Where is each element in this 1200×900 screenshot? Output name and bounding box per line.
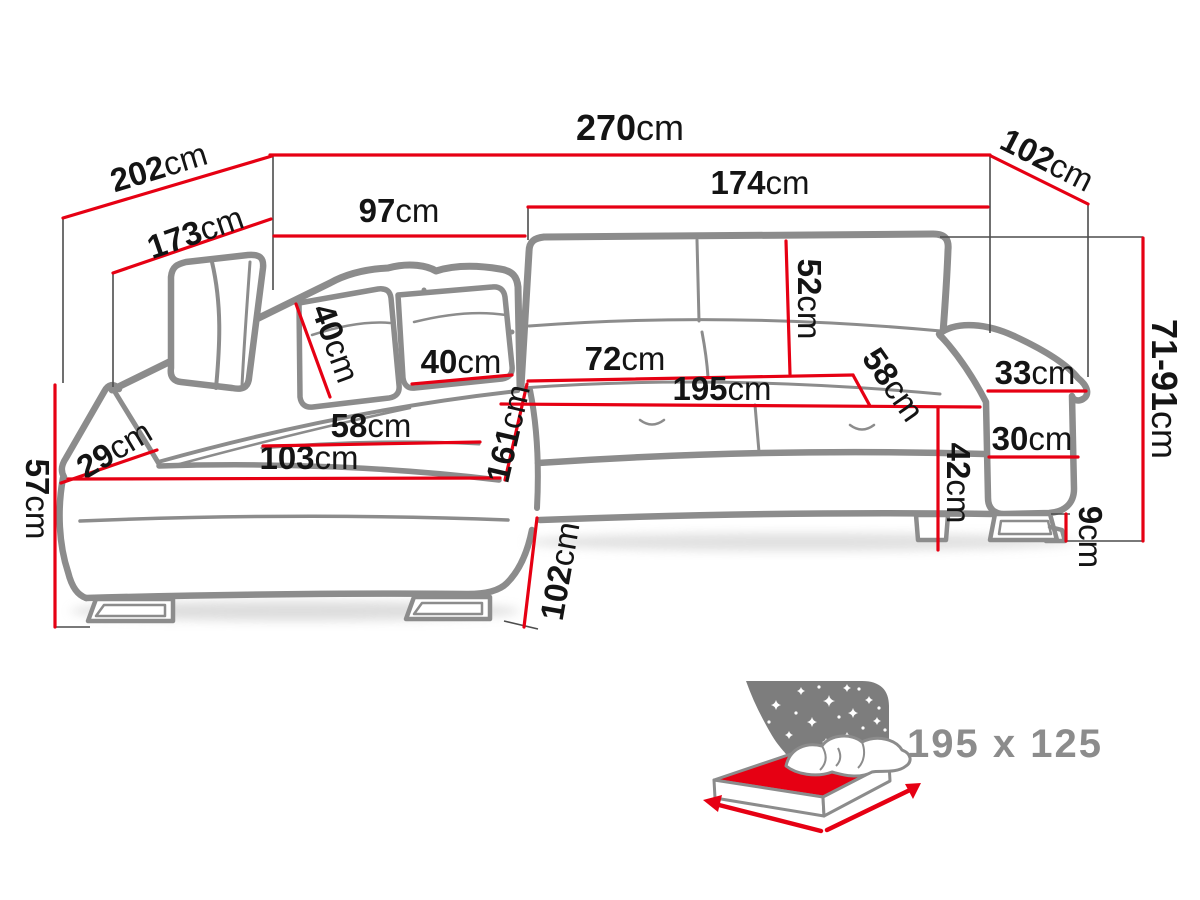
dimension-33cm: 33cm (988, 354, 1086, 391)
dimension-52cm: 52cm (786, 241, 828, 374)
dimension-29cm: 29cm (61, 412, 158, 485)
dimension-270cm: 270cm (270, 107, 990, 155)
dim-line-103 (68, 478, 500, 479)
dim-label-42: 42cm (940, 443, 977, 524)
dim-label-161: 161cm (479, 381, 537, 486)
dim-line-58-right (853, 375, 870, 406)
dim-label-97: 97cm (359, 192, 440, 229)
dimension-97cm: 97cm (274, 192, 525, 236)
dim-label-58-right: 58cm (855, 341, 932, 428)
sofa-back-vertical-seam (697, 240, 708, 377)
dimension-40cm-right-pillow: 40cm (412, 343, 512, 384)
sofa-seat-seam (755, 405, 759, 452)
dim-label-33: 33cm (995, 354, 1076, 391)
chaise-front-left-edge (60, 478, 86, 598)
dim-label-102-top: 102cm (995, 121, 1100, 199)
dim-label-270: 270cm (576, 107, 684, 148)
dim-label-72: 72cm (585, 340, 666, 377)
dimension-102cm-top: 102cm (991, 121, 1100, 204)
dim-line-52 (786, 241, 790, 374)
dim-label-57: 57cm (19, 459, 56, 540)
bed-arrow-width-head (703, 795, 722, 812)
dim-label-195: 195cm (672, 370, 771, 407)
sleeping-area-icon: 195 x 125 (703, 681, 1103, 831)
chaise-bottom-edge (86, 530, 532, 598)
dimension-71-91cm: 71-91cm (1143, 238, 1185, 541)
dim-label-71-91: 71-91cm (1144, 319, 1185, 459)
chaise-front-crease (80, 516, 508, 521)
dimension-57cm: 57cm (19, 385, 56, 627)
sofa-seat-front-edge (538, 452, 985, 463)
sofa-dimension-diagram: 270cm 202cm 173cm 97cm 174cm 102cm 71-91… (0, 0, 1200, 900)
dimension-30cm: 30cm (989, 420, 1078, 457)
sleeping-area-size-label: 195 x 125 (907, 722, 1103, 766)
dim-label-30: 30cm (992, 420, 1073, 457)
dim-label-9: 9cm (1072, 506, 1109, 568)
dim-label-174: 174cm (710, 164, 809, 201)
dim-label-52: 52cm (791, 259, 828, 340)
dimension-202cm: 202cm (63, 135, 272, 218)
dim-label-40-right: 40cm (421, 343, 502, 380)
dimension-58cm-right: 58cm (853, 341, 932, 428)
sofa-back-seam (529, 320, 941, 331)
dimension-9cm: 9cm (1066, 506, 1109, 568)
dim-label-102-bottom: 102cm (533, 519, 587, 623)
dimension-174cm: 174cm (528, 164, 988, 207)
dim-label-58-left: 58cm (331, 407, 412, 444)
dimension-161cm: 161cm (479, 381, 537, 486)
